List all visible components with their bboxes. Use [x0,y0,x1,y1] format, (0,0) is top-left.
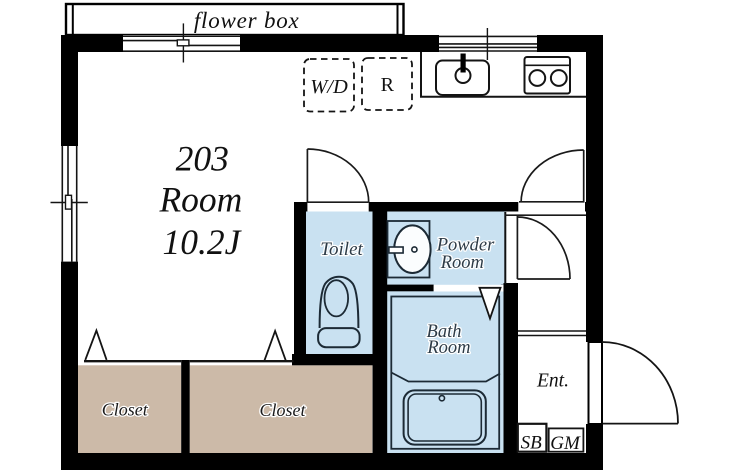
svg-text:Room: Room [440,253,484,273]
svg-text:W/D: W/D [310,76,348,98]
svg-text:Toilet: Toilet [320,239,363,260]
svg-text:GM: GM [550,433,581,454]
svg-text:Room: Room [158,180,242,220]
svg-text:Closet: Closet [259,400,306,420]
svg-text:flower box: flower box [194,8,300,33]
svg-text:Closet: Closet [102,400,149,420]
svg-text:SB: SB [521,432,543,453]
svg-text:10.2J: 10.2J [163,222,243,262]
svg-text:R: R [381,74,395,96]
svg-text:Room: Room [426,338,470,358]
svg-text:203: 203 [176,139,229,179]
svg-text:Ent.: Ent. [536,371,569,392]
